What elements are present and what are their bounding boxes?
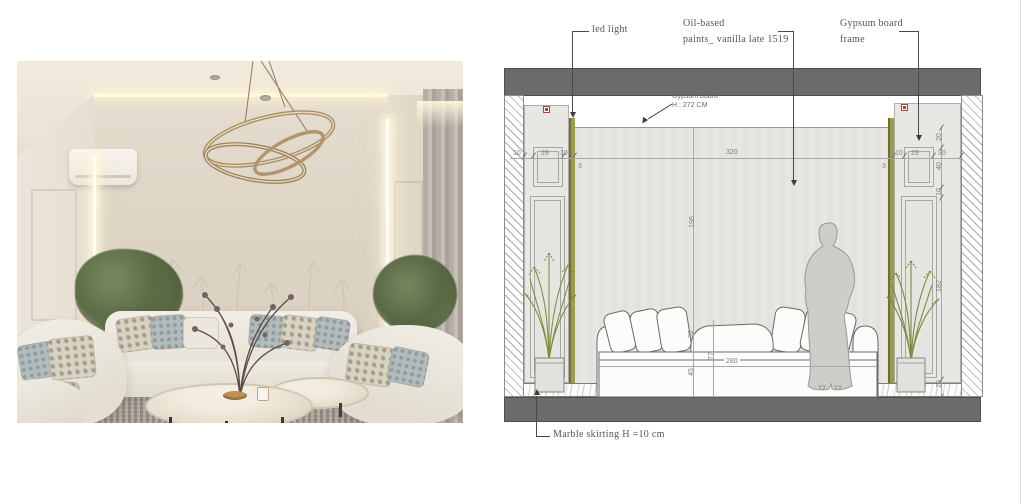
dim-left-10b: 10 [560, 150, 568, 158]
callout-oil-paint-1: Oil-based [683, 18, 725, 30]
plant-right [884, 255, 942, 395]
leader-line [778, 31, 794, 32]
callout-gypsum-frame-2: frame [840, 34, 865, 46]
detail-tag-icon [543, 106, 550, 113]
dim-line-sofa-length [597, 366, 877, 367]
gypsum-frame-panel [904, 147, 934, 187]
leader-line [572, 31, 589, 32]
dim-line-horizontal [510, 158, 962, 159]
leader-line [899, 31, 918, 32]
arrow-down-icon [916, 135, 922, 141]
dim-right-20-top: 20 [936, 133, 944, 141]
dim-right-20-bottom: 20 [936, 380, 944, 388]
arrow-down-icon [570, 112, 576, 118]
page: 10 29 10 320 10 29 30 3 3 196 32 45 77 2… [0, 0, 1024, 504]
arrow-down-icon [791, 180, 797, 186]
detail-tag-icon [901, 104, 908, 111]
dim-right-40: 40 [936, 162, 944, 170]
plant-left [520, 245, 580, 395]
dim-seat: 45 [688, 368, 696, 376]
leader-line [918, 31, 919, 138]
dim-left-10a: 10 [513, 150, 521, 158]
elevation-drawing: 10 29 10 320 10 29 30 3 3 196 32 45 77 2… [0, 0, 1024, 504]
callout-led-light: led light [592, 24, 628, 36]
leader-line [572, 31, 573, 115]
callout-oil-paint-2: paints_ vanilla late 1519 [683, 34, 789, 46]
dim-right-182: 182 [936, 280, 944, 292]
note-gypsum-board-2: H : 272 CM [672, 101, 707, 110]
leader-line [648, 104, 672, 120]
leader-line [536, 436, 550, 437]
dim-sofa-length: 280 [724, 358, 740, 366]
floor-slab [504, 397, 981, 422]
dim-wall-height: 196 [689, 216, 697, 228]
arrow-up-icon [534, 389, 540, 395]
dim-led-right: 3 [882, 163, 886, 171]
dim-sofa-back: 77 [708, 352, 716, 360]
dim-wall-width: 320 [726, 149, 738, 157]
dim-right-10: 10 [895, 150, 903, 158]
ceiling-slab [504, 68, 981, 96]
leader-line [793, 31, 794, 183]
dim-right-29: 29 [911, 150, 919, 158]
leader-line [536, 396, 537, 437]
dim-right-10: 10 [936, 188, 944, 196]
callout-gypsum-frame-1: Gypsum board [840, 18, 903, 30]
dim-led-left: 3 [578, 163, 582, 171]
dim-left-29: 29 [541, 150, 549, 158]
note-marble-skirting: Marble skirting H =10 cm [553, 429, 665, 441]
dim-cushion: 32 [688, 330, 696, 338]
page-edge-line [1020, 0, 1021, 504]
right-wall-section [961, 95, 983, 397]
note-gypsum-board-1: Gypsum board [672, 92, 718, 101]
dim-line-vertical [693, 127, 694, 397]
human-silhouette [795, 215, 867, 395]
